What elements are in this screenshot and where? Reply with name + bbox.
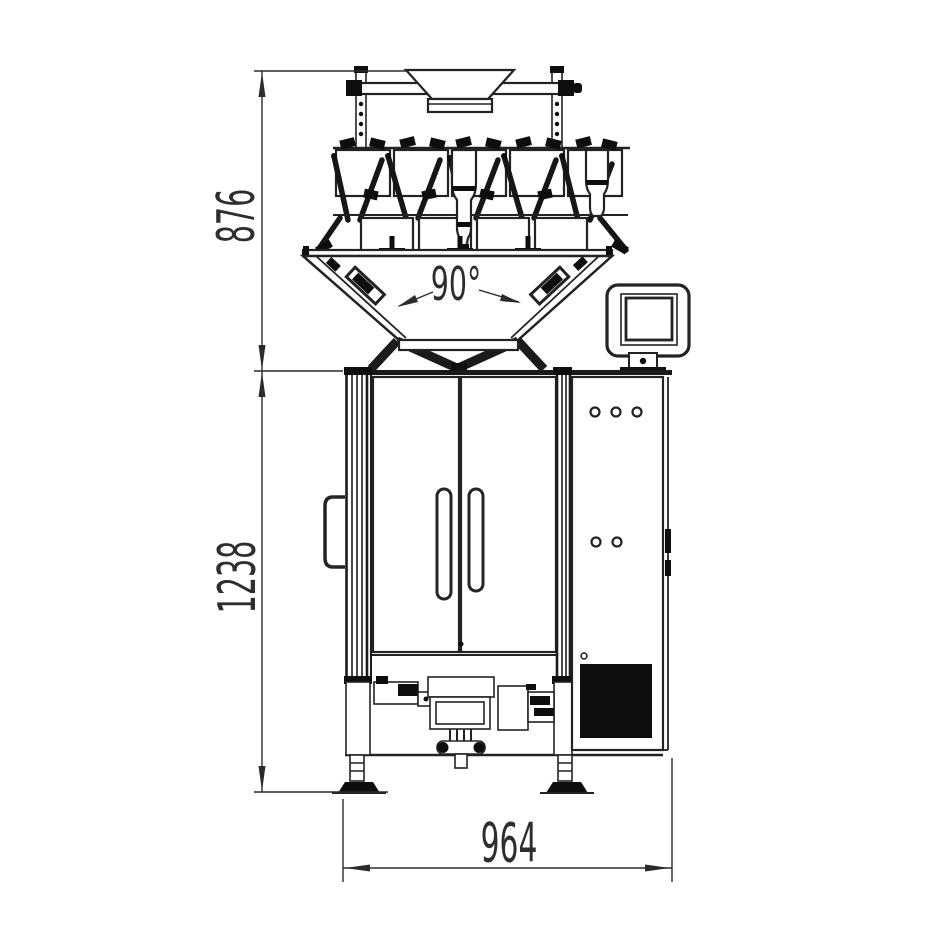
foot-left (332, 755, 386, 793)
drive-compartment (372, 655, 556, 768)
technical-drawing-page: 876 1238 964 90° (0, 0, 946, 946)
left-frame-leg (346, 682, 370, 755)
dim-label-964: 964 (481, 813, 538, 875)
machine-elevation-drawing: 876 1238 964 90° (0, 0, 946, 946)
control-screen (607, 285, 689, 373)
hinge-lower (665, 560, 671, 576)
side-handle (325, 497, 345, 567)
screen-display (626, 298, 672, 340)
foot-right (540, 755, 594, 793)
angle-label-90: 90° (431, 258, 482, 312)
vent-grille (580, 664, 652, 738)
multihead-weigher (315, 136, 630, 254)
dim-label-1238: 1238 (207, 541, 268, 614)
bag-former-stub (455, 754, 467, 768)
dimension-width: 964 (343, 758, 672, 882)
cone-outlet (399, 340, 518, 350)
dim-label-876: 876 (206, 189, 267, 244)
door-right (461, 377, 556, 652)
right-frame-leg (554, 682, 572, 755)
door-left (373, 377, 459, 652)
left-frame-column (344, 367, 372, 755)
electrical-panel (572, 377, 671, 750)
hinge-upper (665, 529, 671, 553)
machine-cabinet (325, 367, 672, 793)
